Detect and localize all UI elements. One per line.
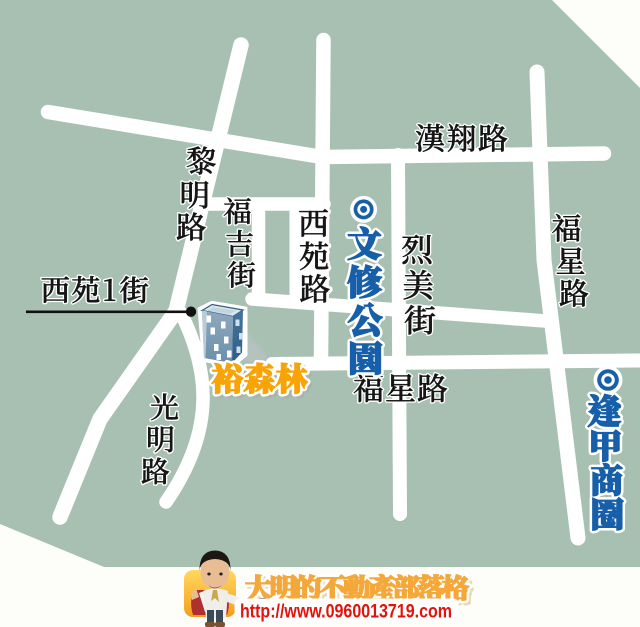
svg-text:http://www.0960013719.com: http://www.0960013719.com xyxy=(240,601,452,623)
